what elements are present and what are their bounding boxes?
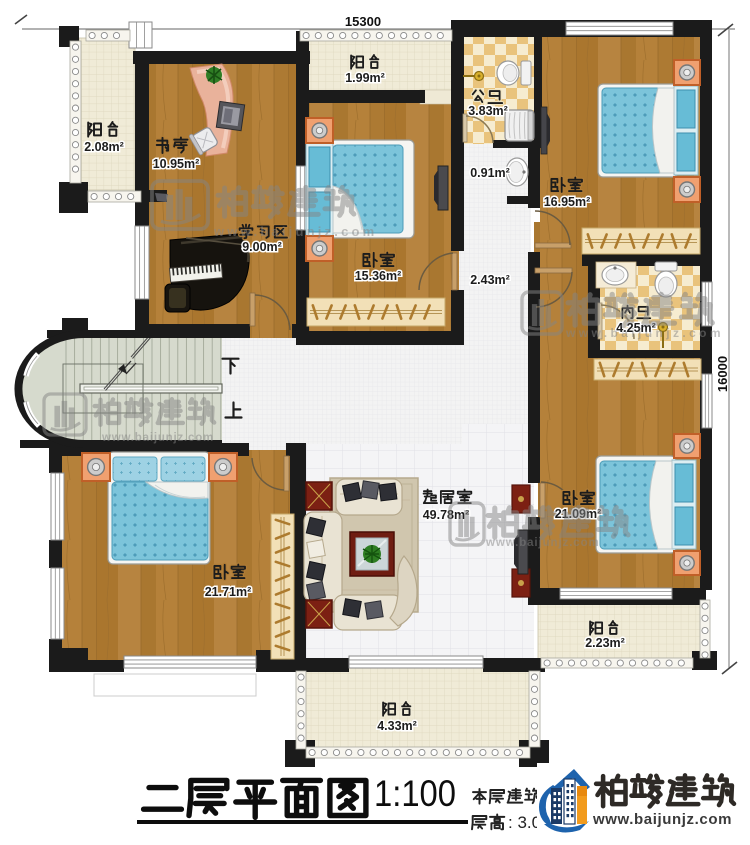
svg-text:www.baijunjz.com: www.baijunjz.com [213, 224, 377, 239]
svg-text:16000: 16000 [715, 356, 730, 392]
svg-text:15300: 15300 [345, 14, 381, 29]
svg-text:9.00m²: 9.00m² [242, 240, 282, 254]
svg-text:1.99m²: 1.99m² [345, 71, 385, 85]
svg-text:4.33m²: 4.33m² [377, 719, 417, 733]
svg-text:www.baijunjz.com: www.baijunjz.com [485, 537, 600, 549]
svg-text:1:100: 1:100 [374, 773, 456, 814]
svg-text:15.36m²: 15.36m² [355, 269, 402, 283]
svg-text:www.baijunjz.com: www.baijunjz.com [592, 811, 732, 828]
svg-text:16.95m²: 16.95m² [544, 195, 591, 209]
svg-text:2.43m²: 2.43m² [470, 273, 510, 287]
svg-text:2.08m²: 2.08m² [84, 140, 124, 154]
svg-text:2.23m²: 2.23m² [585, 636, 625, 650]
svg-text:0.91m²: 0.91m² [470, 166, 510, 180]
svg-text:10.95m²: 10.95m² [153, 157, 200, 171]
svg-text:www.baijunjz.com: www.baijunjz.com [101, 432, 214, 444]
svg-text:3.83m²: 3.83m² [468, 104, 508, 118]
svg-text:21.71m²: 21.71m² [205, 585, 252, 599]
svg-text:www.baijunjz.com: www.baijunjz.com [565, 326, 724, 340]
